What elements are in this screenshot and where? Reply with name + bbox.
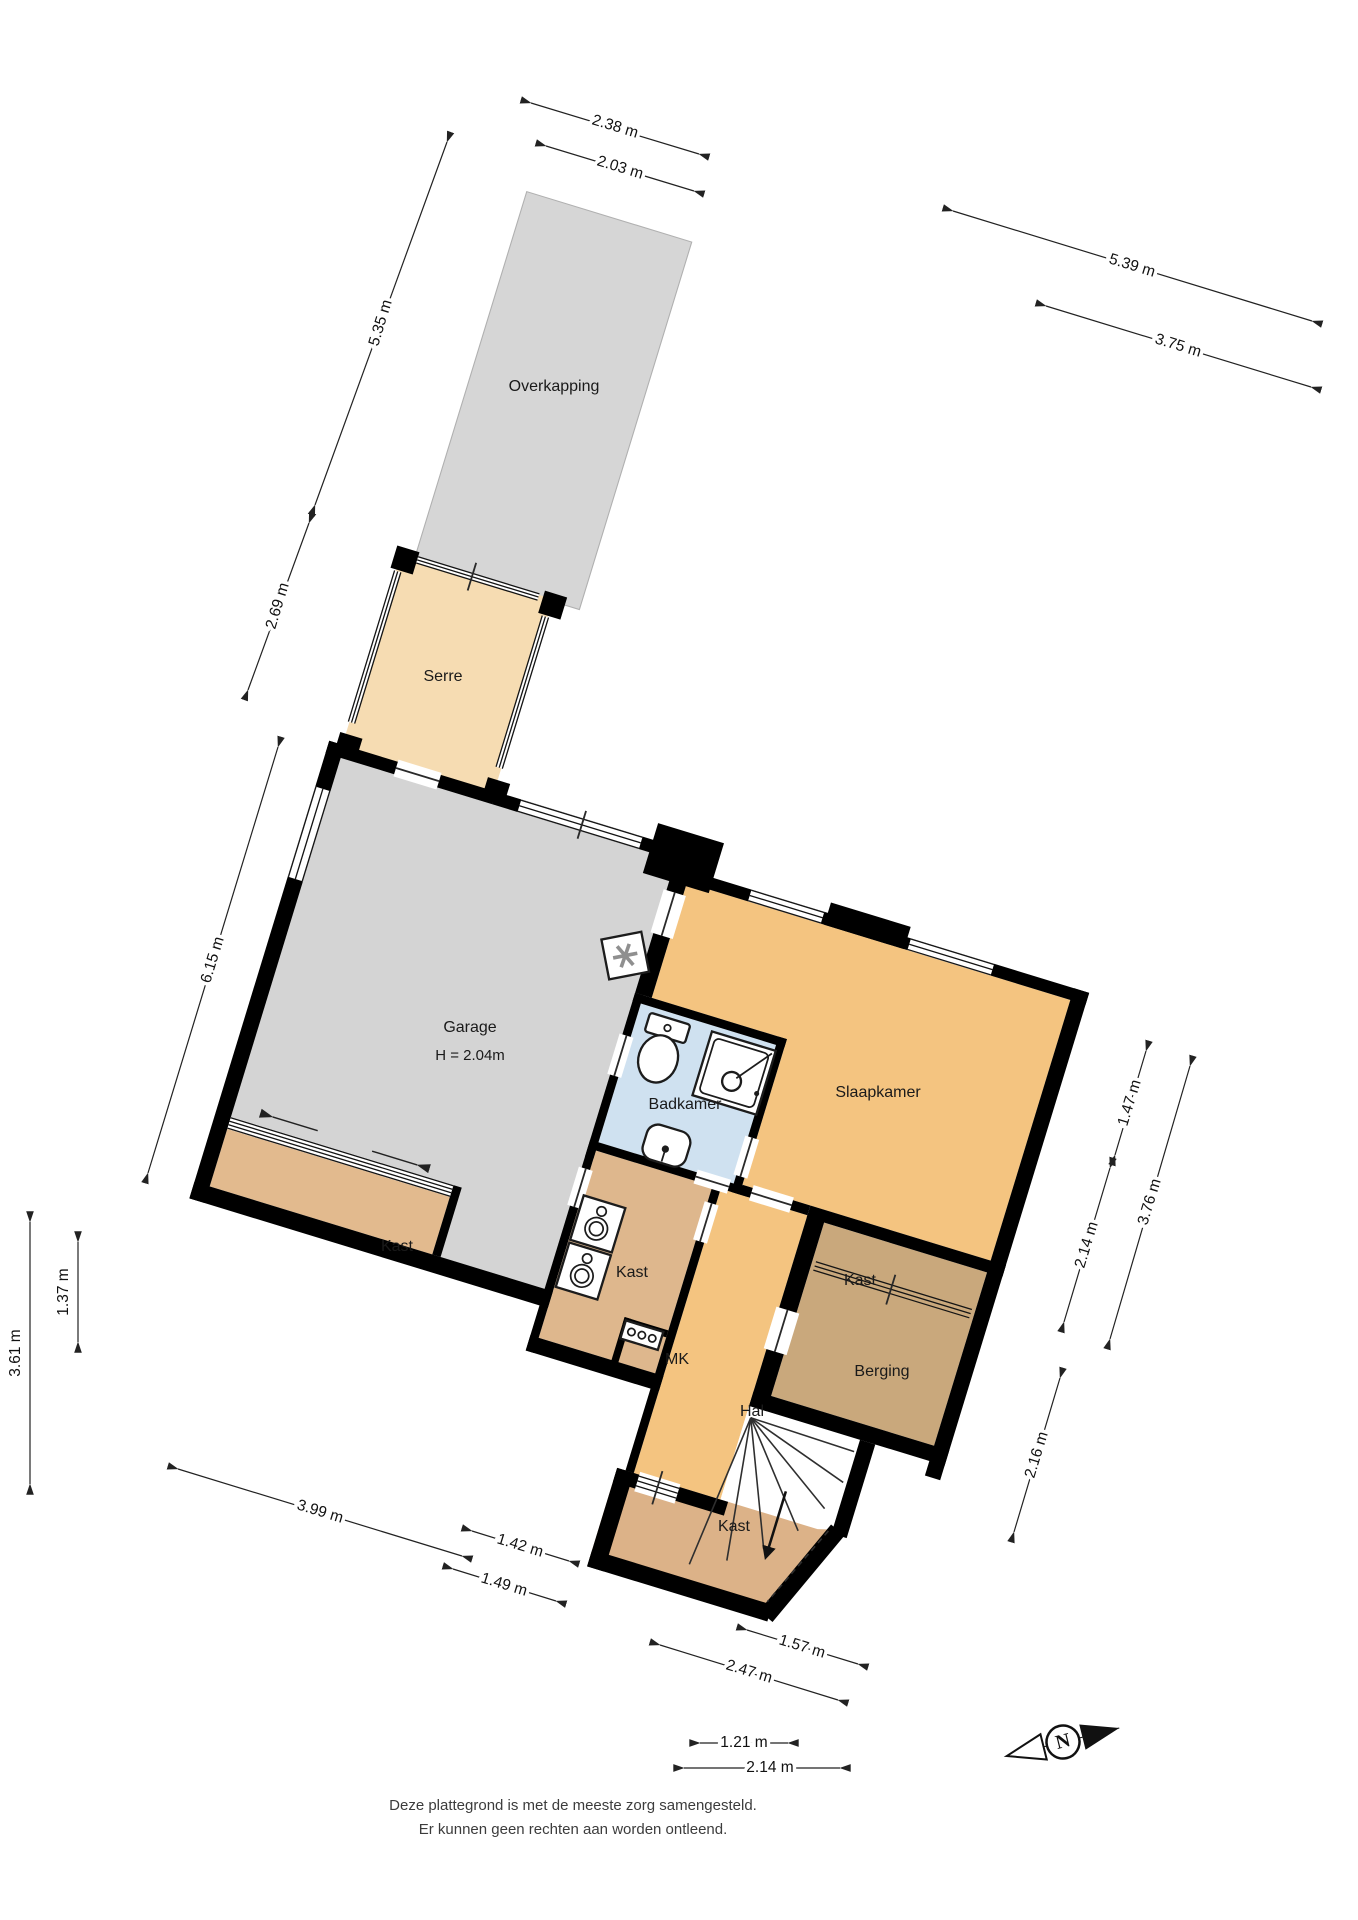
label-kast-mid: Kast [616, 1264, 649, 1281]
dimension: 2.16 m [1014, 1378, 1060, 1532]
label-kast-bottom: Kast [718, 1518, 751, 1535]
dimension-label: 2.14 m [1072, 1220, 1102, 1270]
label-serre: Serre [423, 668, 462, 685]
dimension: 3.75 m [1046, 306, 1311, 387]
label-garage-height: H = 2.04m [435, 1047, 505, 1064]
dimension: 1.57 m [747, 1630, 858, 1664]
dimension: 5.39 m [953, 211, 1312, 321]
label-mk: MK [665, 1351, 689, 1368]
dimension: 3.99 m [178, 1469, 462, 1556]
dimension-label: 3.61 m [7, 1329, 24, 1376]
dimension-label: 1.47 m [1115, 1078, 1145, 1128]
label-berging: Berging [854, 1363, 909, 1380]
dimension: 2.14 m [684, 1759, 840, 1776]
dimension: 2.69 m [248, 523, 309, 690]
dimension-label: 1.57 m [777, 1632, 827, 1662]
dimension: 2.03 m [546, 146, 694, 191]
dimension-label: 2.16 m [1022, 1430, 1052, 1480]
dimension-label: 2.14 m [746, 1759, 793, 1776]
label-hal: Hal [740, 1403, 764, 1420]
dimension-label: 1.42 m [495, 1531, 545, 1561]
dimension-label: 1.49 m [479, 1570, 529, 1600]
dimension-label: 1.37 m [55, 1268, 72, 1315]
boiler-icon [601, 932, 649, 980]
dimension: 1.37 m [55, 1242, 78, 1342]
floorplan-page: Overkapping Serre Garage H = 2.04m Badka… [0, 0, 1358, 1920]
dimension: 1.42 m [472, 1531, 569, 1561]
label-overkapping: Overkapping [509, 378, 600, 395]
dimension-label: 2.69 m [263, 581, 293, 631]
room-overkapping [414, 192, 691, 610]
dimension-label: 3.76 m [1135, 1177, 1165, 1227]
dimension-label: 2.38 m [590, 112, 640, 142]
dimension: 2.14 m [1064, 1168, 1110, 1322]
label-badkamer: Badkamer [649, 1096, 723, 1113]
dimension: 3.61 m [7, 1222, 30, 1484]
footer-line-2: Er kunnen geen rechten aan worden ontlee… [419, 1821, 728, 1838]
dimension-label: 2.47 m [724, 1657, 774, 1687]
label-garage: Garage [443, 1019, 496, 1036]
dimension: 1.49 m [453, 1569, 556, 1601]
dimension-label: 5.35 m [366, 298, 396, 348]
dimension-label: 3.75 m [1153, 331, 1203, 361]
dimension: 1.47 m [1115, 1051, 1146, 1155]
label-kast-right: Kast [844, 1272, 877, 1289]
dimension-label: 1.21 m [720, 1734, 767, 1751]
dimension: 5.35 m [315, 142, 447, 505]
dimension-label: 5.39 m [1107, 251, 1157, 281]
dimension-label: 2.03 m [595, 153, 645, 183]
dimension: 2.38 m [531, 103, 699, 154]
dimension-label: 3.99 m [295, 1497, 345, 1527]
dimension-label: 6.15 m [198, 935, 228, 985]
label-kast-left: Kast [381, 1238, 414, 1255]
north-arrow-icon: N [1003, 1712, 1124, 1772]
floorplan [120, 183, 1265, 1657]
dimension: 1.21 m [700, 1734, 788, 1751]
label-slaapkamer: Slaapkamer [835, 1084, 921, 1101]
footer-line-1: Deze plattegrond is met de meeste zorg s… [389, 1797, 757, 1814]
